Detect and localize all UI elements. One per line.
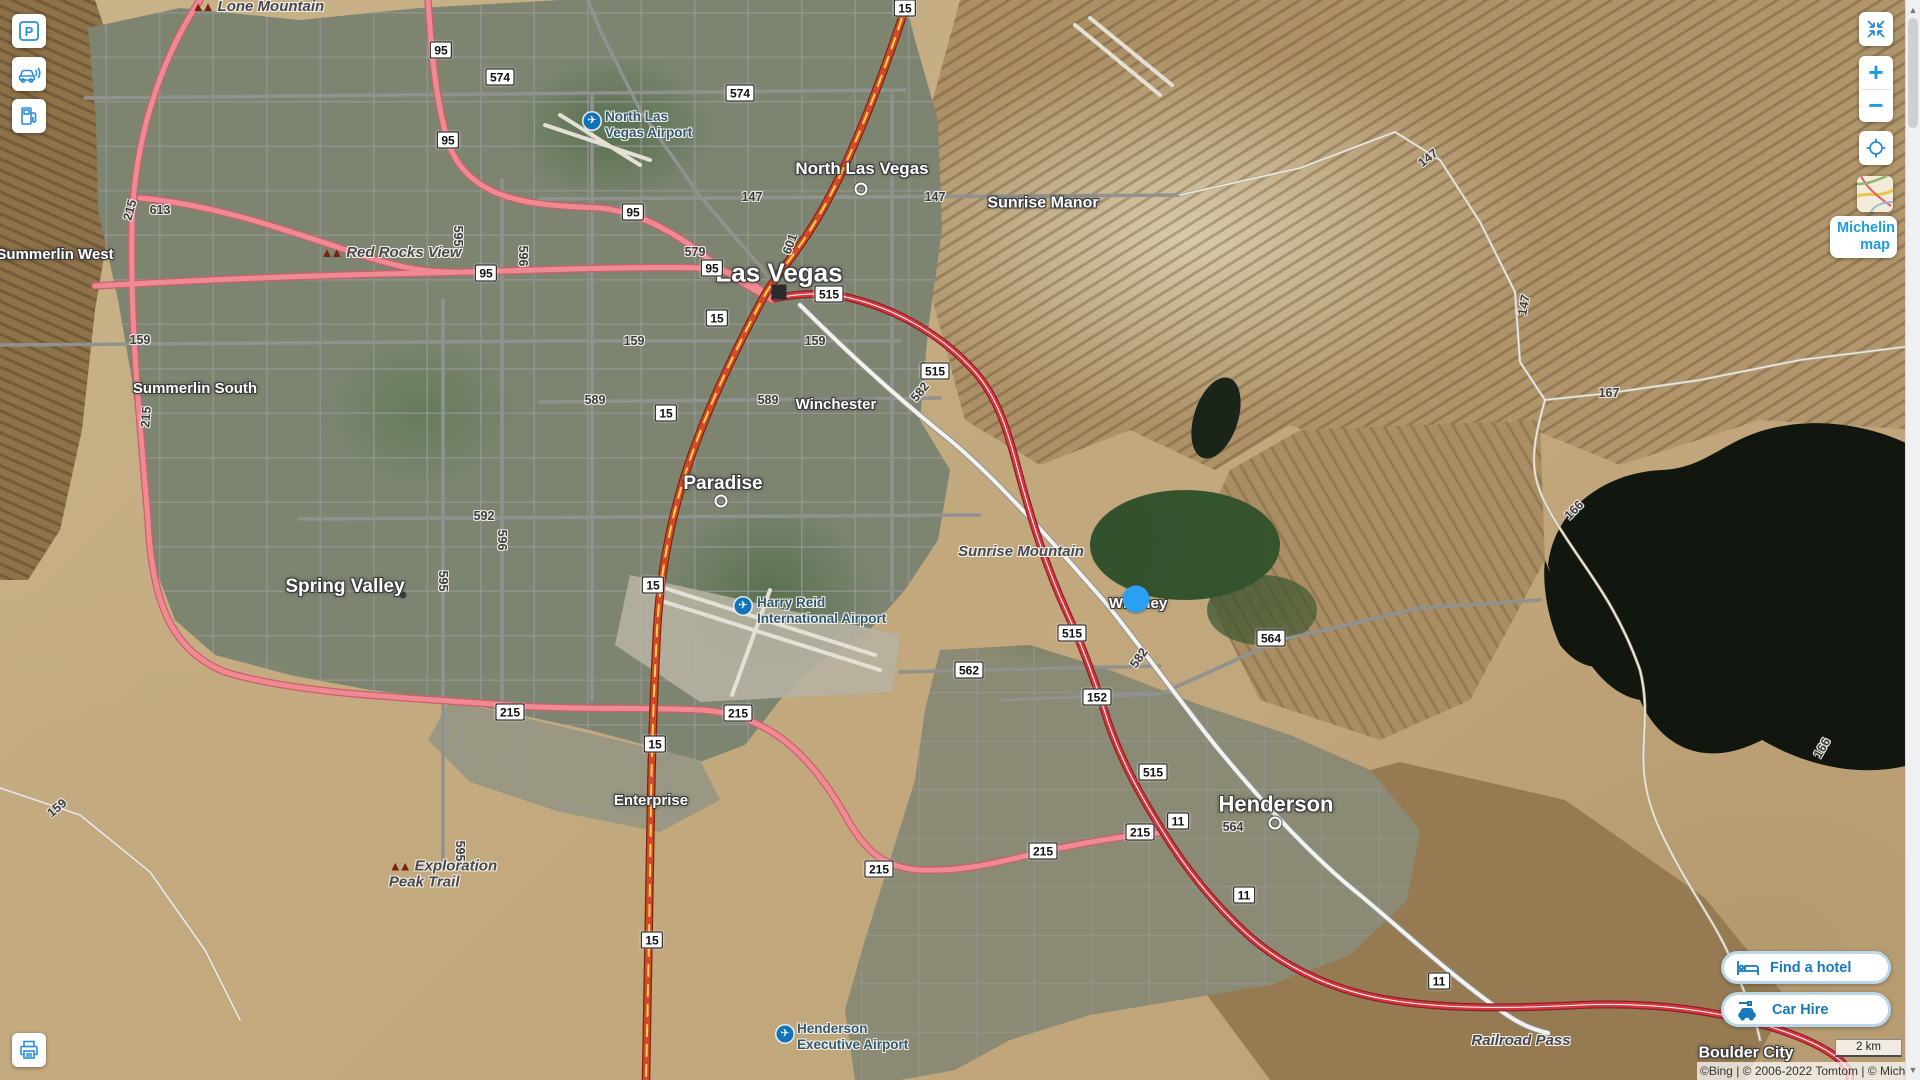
route-shield-515: 515 — [920, 363, 949, 380]
city-label: Summerlin West — [0, 247, 114, 263]
city-label: Sunrise Manor — [987, 196, 1098, 213]
route-shield-15: 15 — [894, 0, 916, 17]
route-shield-15: 15 — [655, 405, 677, 422]
route-number-596: 596 — [516, 246, 530, 267]
route-shield-564: 564 — [1256, 630, 1285, 647]
route-number-159: 159 — [130, 333, 151, 347]
route-shield-95: 95 — [475, 265, 497, 282]
map-style-toggle[interactable]: Michelin map — [1830, 216, 1897, 258]
mountain-peak-icon: ▲▲ — [320, 245, 340, 260]
route-number-589: 589 — [758, 393, 779, 407]
city-marker — [400, 592, 407, 599]
car-hire-button[interactable]: Car Hire — [1721, 992, 1891, 1027]
map-style-preview-button[interactable] — [1857, 176, 1893, 212]
map-labels-layer: Las VegasNorth Las VegasSunrise ManorWin… — [0, 0, 1920, 1080]
collapse-icon — [1865, 18, 1887, 40]
car-hire-icon — [1736, 998, 1762, 1022]
airport-icon: ✈ — [584, 113, 601, 130]
route-shield-215: 215 — [1028, 843, 1057, 860]
route-number-147: 147 — [742, 190, 763, 204]
route-shield-95: 95 — [701, 260, 723, 277]
route-number-589: 589 — [585, 393, 606, 407]
city-label: Summerlin South — [133, 381, 257, 397]
route-shield-515: 515 — [1057, 625, 1086, 642]
city-label: Henderson — [1219, 792, 1334, 815]
route-shield-95: 95 — [437, 132, 459, 149]
city-marker — [855, 183, 868, 196]
route-shield-215: 215 — [864, 861, 893, 878]
route-shield-515: 515 — [814, 286, 843, 303]
place-label: Railroad Pass — [1471, 1033, 1570, 1049]
route-number-215: 215 — [138, 406, 154, 428]
route-number-582: 582 — [1127, 645, 1150, 670]
route-number-166: 166 — [1811, 735, 1834, 760]
car-hire-label: Car Hire — [1772, 1002, 1828, 1018]
route-number-147: 147 — [925, 190, 946, 204]
mountain-peak-icon: ▲▲ — [192, 0, 212, 14]
route-number-159: 159 — [805, 334, 826, 348]
city-label: Las Vegas — [715, 259, 842, 286]
hotel-bed-icon — [1736, 959, 1760, 977]
zoom-out-button[interactable]: − — [1859, 90, 1893, 123]
print-button[interactable] — [12, 1033, 46, 1067]
airport-label: HendersonExecutive Airport — [797, 1021, 908, 1053]
route-shield-574: 574 — [485, 69, 514, 86]
route-number-147: 147 — [1515, 294, 1532, 317]
route-shield-95: 95 — [430, 42, 452, 59]
place-label: ▲▲Red Rocks View — [320, 245, 461, 261]
traffic-car-icon — [17, 62, 41, 86]
route-number-167: 167 — [1599, 386, 1620, 400]
mountain-peak-icon: ▲▲ — [389, 858, 409, 873]
city-label: North Las Vegas — [795, 160, 928, 178]
route-number-215: 215 — [121, 198, 140, 222]
route-shield-11: 11 — [1233, 887, 1255, 904]
route-shield-215: 215 — [723, 705, 752, 722]
route-shield-15: 15 — [644, 736, 666, 753]
route-shield-15: 15 — [642, 577, 664, 594]
route-number-595: 595 — [453, 841, 467, 862]
airport-icon: ✈ — [735, 598, 752, 615]
route-number-592: 592 — [474, 509, 495, 523]
geolocation-dot[interactable] — [1123, 586, 1150, 613]
airport-label: North LasVegas Airport — [605, 109, 692, 141]
airport-icon: ✈ — [777, 1026, 794, 1043]
route-number-159: 159 — [45, 796, 70, 820]
svg-text:P: P — [25, 24, 34, 39]
scroll-up-icon[interactable]: ▲ — [1906, 2, 1920, 18]
city-label: Boulder City — [1698, 1046, 1793, 1063]
vertical-scrollbar[interactable]: ▲ ▼ — [1905, 0, 1920, 1080]
route-number-595: 595 — [436, 571, 450, 592]
locate-button[interactable] — [1859, 131, 1893, 165]
zoom-control: + − — [1859, 56, 1893, 122]
map-app: Las VegasNorth Las VegasSunrise ManorWin… — [0, 0, 1920, 1080]
route-shield-95: 95 — [622, 204, 644, 221]
route-number-579: 579 — [685, 245, 706, 259]
parking-button[interactable]: P — [12, 14, 46, 48]
route-shield-574: 574 — [725, 85, 754, 102]
route-shield-15: 15 — [706, 310, 728, 327]
route-number-595: 595 — [451, 226, 465, 247]
map-scale: 2 km — [1835, 1039, 1902, 1057]
route-number-582: 582 — [908, 380, 932, 405]
fuel-pump-icon — [18, 105, 40, 127]
find-hotel-button[interactable]: Find a hotel — [1721, 951, 1891, 984]
city-marker — [772, 285, 787, 300]
zoom-in-button[interactable]: + — [1859, 56, 1893, 89]
route-shield-11: 11 — [1428, 973, 1450, 990]
city-marker — [715, 495, 728, 508]
route-number-166: 166 — [1562, 498, 1587, 523]
printer-icon — [18, 1039, 40, 1061]
route-shield-152: 152 — [1082, 689, 1111, 706]
route-shield-215: 215 — [495, 704, 524, 721]
route-number-601: 601 — [780, 232, 800, 256]
route-number-596: 596 — [495, 530, 509, 551]
city-label: Enterprise — [614, 793, 688, 809]
route-shield-515: 515 — [1138, 764, 1167, 781]
route-number-159: 159 — [624, 334, 645, 348]
place-label: ▲▲Lone Mountain — [192, 0, 324, 15]
parking-icon: P — [18, 20, 40, 42]
route-number-613: 613 — [150, 203, 171, 217]
fuel-button[interactable] — [12, 99, 46, 133]
city-label: Paradise — [683, 474, 762, 494]
copyright-bar: ©Bing | © 2006-2022 Tomtom | © Michelin — [1697, 1062, 1906, 1080]
route-shield-15: 15 — [641, 932, 663, 949]
city-marker — [1269, 817, 1282, 830]
scroll-down-icon[interactable]: ▼ — [1906, 1062, 1920, 1078]
route-shield-11: 11 — [1167, 813, 1189, 830]
route-shield-215: 215 — [1125, 824, 1154, 841]
airport-label: Harry ReidInternational Airport — [757, 595, 886, 627]
city-label: Winchester — [796, 397, 877, 413]
map-thumbnail-icon — [1857, 176, 1893, 212]
locate-icon — [1865, 137, 1887, 159]
route-shield-562: 562 — [954, 662, 983, 679]
place-label: Sunrise Mountain — [958, 544, 1084, 560]
traffic-button[interactable] — [12, 57, 46, 91]
scrollbar-thumb[interactable] — [1908, 18, 1918, 128]
city-label: Spring Valley — [285, 577, 404, 597]
find-hotel-label: Find a hotel — [1770, 960, 1851, 976]
route-number-147: 147 — [1415, 146, 1440, 170]
place-label: ▲▲ExplorationPeak Trail — [389, 858, 497, 890]
route-number-564: 564 — [1223, 820, 1244, 834]
collapse-button[interactable] — [1859, 12, 1893, 46]
